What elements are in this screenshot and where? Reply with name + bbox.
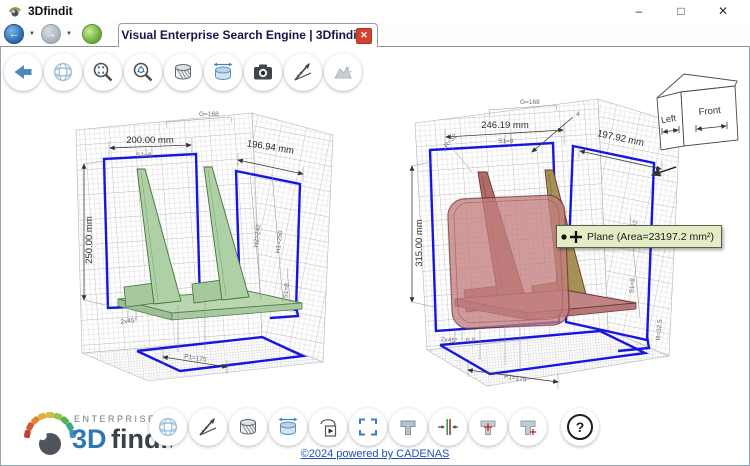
caret-down-icon: ▼ [66,31,72,37]
measure-cylinder-button[interactable] [204,53,242,91]
view-cube-front-label: Front [698,105,722,118]
app-logo-icon [8,4,22,18]
part-point-corner-button[interactable] [509,408,547,446]
measure-angle-icon [291,60,315,84]
measure-angle-button[interactable] [284,53,322,91]
part-solid-button[interactable] [389,408,427,446]
tab-title: Visual Enterprise Search Engine | 3Dfind… [121,28,374,42]
mesh-view-button[interactable] [44,53,82,91]
part-point-corner-icon [516,415,540,439]
dim-label: S1=8 [136,152,152,159]
measure-angle-button[interactable] [189,408,227,446]
back-button[interactable] [4,53,42,91]
tab-close-button[interactable]: ✕ [356,28,372,44]
part-solid-icon [396,415,420,439]
mesh-view-icon [156,415,180,439]
title-bar: 3Dfindit – □ ✕ [0,0,750,22]
align-parts-button[interactable] [429,408,467,446]
copyright-link[interactable]: ©2024 powered by CADENAS [0,448,750,460]
tooltip-text: Plane (Area=23197.2 mm²) [587,231,714,243]
back-arrow-icon: ← [9,28,20,40]
app-window: 3Dfindit – □ ✕ ← ▼ → ▼ Visual Enterprise… [0,0,750,466]
dim-label: S1=8 [628,278,636,294]
camera-icon [251,60,275,84]
part-point-center-icon [476,415,500,439]
toolbar-bottom: ? [149,408,601,446]
tab-bar: ← ▼ → ▼ Visual Enterprise Search Engine … [0,22,750,47]
section-view-button[interactable] [229,408,267,446]
help-button[interactable]: ? [561,408,599,446]
maximize-button[interactable]: □ [660,4,702,18]
align-parts-icon [436,415,460,439]
forward-arrow-icon: → [46,28,57,40]
dim-label: G=168 [199,111,219,118]
dim-label: 200.00 mm [126,135,174,146]
section-view-icon [171,60,195,84]
close-button[interactable]: ✕ [702,4,744,18]
mesh-view-button[interactable] [149,408,187,446]
measure-cylinder-button[interactable] [269,408,307,446]
mesh-view-icon [51,60,75,84]
cursor-crosshair-icon [559,229,587,245]
nav-back-history-caret[interactable]: ▼ [27,31,37,37]
window-title: 3Dfindit [28,4,73,18]
viewer-3d[interactable]: G=168 200.00 mm S1=8 196.94 mm 250.00 mm… [0,46,750,402]
fit-view-icon [356,415,380,439]
zoom-fit-button[interactable] [84,53,122,91]
play-animation-icon [316,415,340,439]
dim-label: 6.8 [466,337,475,344]
brand-enterprise: ENTERPRISE [74,414,157,424]
nav-back-button[interactable]: ← [4,24,24,44]
part-point-center-button[interactable] [469,408,507,446]
caret-down-icon: ▼ [29,31,35,37]
render-disabled-button[interactable] [324,53,362,91]
dim-label: 315.00 mm [414,219,425,267]
dim-label: G=168 [520,99,540,106]
screenshot-button[interactable] [244,53,282,91]
dim-label: 250.00 mm [84,216,95,264]
zoom-select-icon [131,60,155,84]
measurement-tooltip: Plane (Area=23197.2 mm²) [556,225,722,248]
minimize-button[interactable]: – [618,4,660,18]
nav-forward-history-caret[interactable]: ▼ [64,31,74,37]
measure-angle-icon [196,415,220,439]
dim-label: S1=8 [498,138,514,145]
zoom-fit-icon [91,60,115,84]
view-cube[interactable]: Left Front [657,74,738,150]
dim-label: 4 [576,111,580,118]
tab-visual-search[interactable]: Visual Enterprise Search Engine | 3Dfind… [118,23,378,47]
section-view-button[interactable] [164,53,202,91]
toolbar-top [4,53,364,91]
zoom-select-button[interactable] [124,53,162,91]
measure-cylinder-icon [276,415,300,439]
help-icon: ? [567,414,593,440]
render-disabled-icon [331,60,355,84]
section-view-icon [236,415,260,439]
nav-forward-button[interactable]: → [41,24,61,44]
back-arrow-icon [11,60,35,84]
play-animation-button[interactable] [309,408,347,446]
nav-go-button[interactable] [82,24,102,44]
fit-view-button[interactable] [349,408,387,446]
measure-cylinder-icon [211,60,235,84]
left-model[interactable]: G=168 200.00 mm S1=8 196.94 mm 250.00 mm… [76,111,333,381]
dim-label: 246.19 mm [481,120,529,131]
